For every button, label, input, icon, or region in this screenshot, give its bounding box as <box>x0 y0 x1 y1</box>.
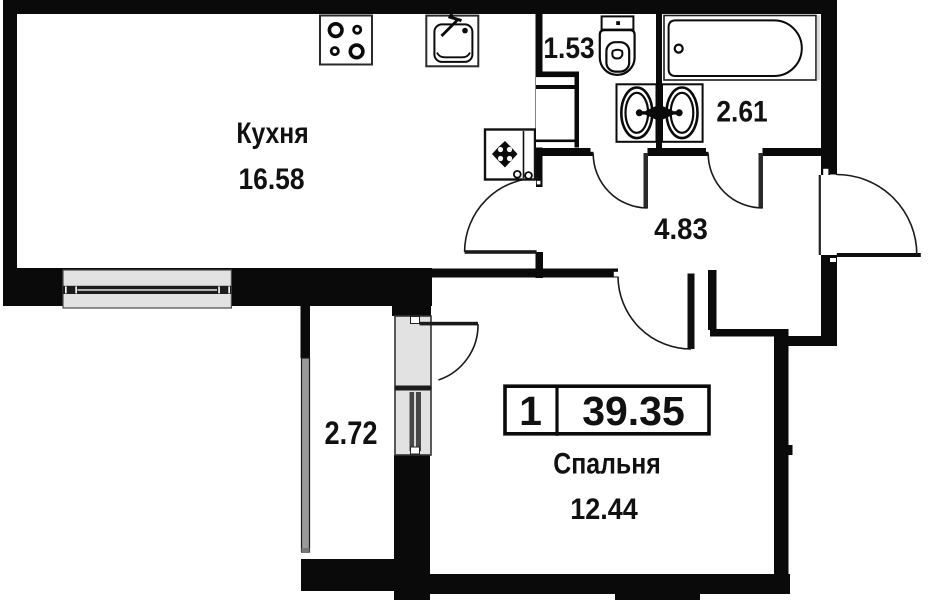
svg-text:4.83: 4.83 <box>654 213 708 246</box>
svg-text:2.61: 2.61 <box>716 94 767 128</box>
svg-text:12.44: 12.44 <box>570 493 638 527</box>
svg-text:Кухня: Кухня <box>236 116 308 150</box>
svg-text:16.58: 16.58 <box>238 162 304 196</box>
svg-text:Спальня: Спальня <box>553 446 660 480</box>
svg-text:2.72: 2.72 <box>325 416 378 452</box>
svg-text:39.35: 39.35 <box>582 388 685 434</box>
svg-text:1: 1 <box>519 388 542 434</box>
svg-text:1.53: 1.53 <box>543 31 594 65</box>
